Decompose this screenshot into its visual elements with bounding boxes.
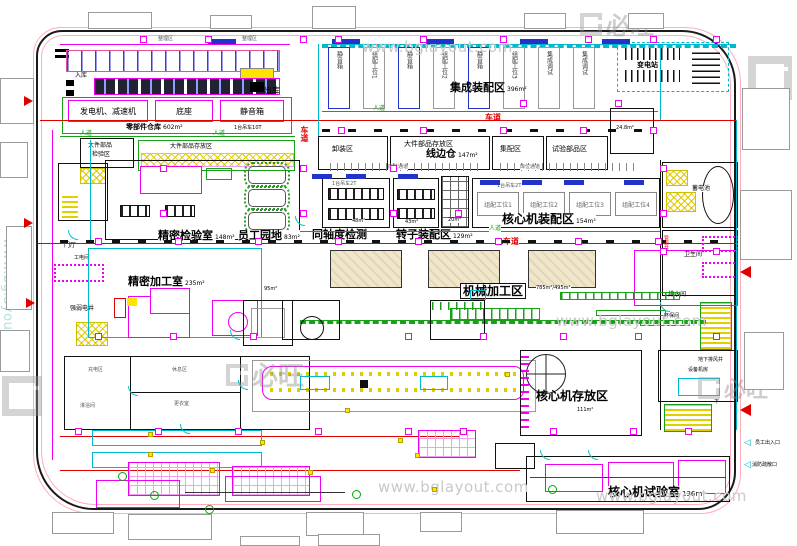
exterior-structure	[312, 6, 356, 29]
column-marker	[160, 210, 167, 217]
assembly-zone-label: 集成装配区396m²	[450, 82, 527, 93]
column-marker	[420, 36, 427, 43]
coax-area: 48m²	[352, 219, 365, 224]
machine	[140, 166, 202, 194]
room-generator: 发电机、减速机	[68, 100, 148, 122]
tank	[702, 166, 734, 224]
room-label: 休息区	[172, 368, 187, 373]
column-marker	[630, 428, 637, 435]
assembly-bay: 静音箱	[398, 47, 420, 109]
pit-marker	[118, 472, 127, 481]
column-marker	[300, 165, 307, 172]
floorplan-canvas: 整理区 整理区 入库 出库 发电机、减速机 底座 静音箱 零部件仓库602m² …	[0, 0, 797, 546]
column-marker	[655, 238, 662, 245]
column-marker	[560, 333, 567, 340]
lift-platform	[80, 168, 106, 184]
equipment	[666, 170, 688, 186]
column-marker	[650, 127, 657, 134]
aisle-label: 库位通道	[520, 165, 540, 170]
bench	[120, 205, 150, 217]
column-marker	[335, 238, 342, 245]
column-marker	[95, 238, 102, 245]
column-marker	[420, 127, 427, 134]
column-marker	[415, 238, 422, 245]
cnc-machine	[150, 288, 190, 314]
column-marker	[660, 165, 667, 172]
fire-exit-label: 消防疏散口	[752, 463, 777, 468]
arrow-marker	[740, 404, 751, 416]
watermark-url: www.bglayout.com	[378, 478, 529, 496]
pedestrian-label: 人道	[213, 131, 225, 137]
door-marker	[520, 39, 548, 44]
valve-marker	[415, 453, 420, 458]
exterior-structure	[240, 536, 300, 546]
assembly-bay: 集成调试	[573, 47, 595, 109]
room-base: 底座	[155, 100, 213, 122]
assembly-bay: 集成调试	[538, 47, 560, 109]
warehouse-label: 零部件仓库602m²	[126, 124, 183, 131]
blue-strip	[624, 180, 644, 185]
arrow-marker	[24, 96, 33, 106]
staff-table	[248, 212, 286, 230]
valve-marker	[345, 408, 350, 413]
column-marker	[170, 333, 177, 340]
column-marker	[315, 428, 322, 435]
exterior-structure	[628, 13, 664, 29]
column-marker	[75, 428, 82, 435]
control-box	[495, 443, 535, 469]
tiny-zone-label: 整理区	[158, 37, 173, 42]
vehicle-lane-label: 车道	[485, 114, 501, 122]
core-assembly-label: 核心机装配区154m²	[502, 213, 596, 225]
pit-marker	[150, 491, 159, 500]
substation-gear	[625, 48, 680, 60]
test-block	[360, 380, 368, 388]
inspect-label-1: 大件部品	[88, 143, 112, 149]
wall-line	[60, 44, 290, 45]
rack-area: 20m²	[448, 218, 461, 223]
right-area: 95m²	[264, 287, 277, 292]
staff-table	[248, 166, 286, 184]
column-marker	[585, 36, 592, 43]
assembly-bay: 组配工位2	[433, 47, 455, 109]
bench	[328, 188, 384, 200]
machine-detail	[470, 290, 486, 300]
arrow-marker	[26, 298, 35, 308]
entry-label: 员工出入口	[755, 441, 780, 446]
pit-marker	[548, 485, 557, 494]
arrow-marker	[24, 218, 33, 228]
logo-glyph-icon	[2, 376, 42, 416]
dock-block	[250, 82, 264, 92]
column-marker	[155, 428, 162, 435]
fire-exit-arrow-icon: ◁	[744, 461, 751, 470]
tiny-zone-label: 整理区	[242, 37, 257, 42]
pedestrian-label: 人道	[489, 226, 501, 232]
exterior-structure	[740, 190, 792, 260]
unload-label: 卸装区	[332, 146, 353, 153]
bench	[397, 189, 435, 200]
column-marker	[575, 238, 582, 245]
exterior-structure	[420, 512, 462, 532]
valve-marker	[308, 470, 313, 475]
lane-hatch	[322, 129, 655, 132]
grid-line	[736, 120, 737, 430]
blue-strip	[398, 174, 418, 179]
assembly-bay: 组配工位1	[363, 47, 385, 109]
center-line	[530, 477, 726, 478]
exterior-structure	[556, 510, 644, 534]
stairs	[62, 196, 78, 218]
rack-ticks	[521, 356, 529, 428]
logo-glyph-icon	[580, 13, 602, 35]
blue-strip	[480, 180, 500, 185]
dock-block	[66, 90, 74, 96]
crane-label: 1台吊车2T	[497, 184, 521, 189]
lineside-label: 线边仓147m²	[426, 150, 478, 160]
column-marker	[500, 127, 507, 134]
fan-symbol	[526, 354, 566, 394]
valve-marker	[432, 487, 437, 492]
mezzanine-room	[610, 108, 654, 154]
inbound-label: 入库	[75, 73, 87, 79]
column-marker	[95, 333, 102, 340]
column-marker	[235, 428, 242, 435]
blue-strip	[346, 174, 366, 179]
door-marker	[602, 39, 630, 44]
bench	[397, 208, 435, 219]
bench	[165, 205, 195, 217]
column-marker	[635, 333, 642, 340]
column-marker	[160, 165, 167, 172]
column-marker	[335, 36, 342, 43]
wall-line	[130, 392, 240, 393]
mech-bench	[330, 250, 402, 288]
valve-marker	[148, 432, 153, 437]
exterior-structure	[0, 142, 28, 178]
grid-line	[318, 44, 319, 136]
equipment	[127, 298, 137, 306]
exterior-structure	[742, 88, 790, 150]
pit-box	[225, 476, 321, 502]
core-store-area: 111m²	[577, 408, 593, 413]
pit-marker	[352, 490, 361, 499]
column-marker	[390, 165, 397, 172]
staff-table	[248, 189, 286, 207]
room-silencer: 静音箱	[220, 100, 284, 122]
column-marker	[255, 238, 262, 245]
column-marker	[685, 428, 692, 435]
column-marker	[480, 333, 487, 340]
lane-hatch	[60, 240, 730, 243]
crane-label: 1台吊车10T	[234, 126, 262, 131]
pit-marker	[205, 505, 214, 514]
conveyor	[560, 292, 680, 300]
column-marker	[713, 248, 720, 255]
column-marker	[500, 36, 507, 43]
core-bay: 组配工位4	[615, 192, 657, 216]
fan-room-label: 地下排风井	[698, 358, 723, 363]
room-label: 充电区	[88, 368, 103, 373]
exterior-structure	[0, 330, 30, 372]
watermark-url: www.bglayout.com	[596, 487, 747, 505]
vehicle-lane-line	[38, 243, 736, 244]
rotor-sub-area: 43m²	[405, 220, 418, 225]
storage-mid-label: 大件部品存放区	[404, 141, 453, 148]
test-parts-label: 试验部品区	[552, 146, 587, 153]
mech-areas: 785m²/495m²	[536, 286, 571, 291]
mezzanine-area: 24.8m²	[616, 126, 634, 131]
column-marker	[455, 210, 462, 217]
storage-left-label: 大件部品存放区	[170, 144, 212, 150]
exterior-structure	[744, 332, 784, 390]
substation-gear	[692, 48, 720, 84]
column-marker	[405, 428, 412, 435]
column-marker	[405, 333, 412, 340]
logo-glyph-icon	[698, 377, 720, 399]
machine-detail	[432, 302, 482, 310]
valve-marker	[505, 372, 510, 377]
blue-strip	[312, 174, 332, 179]
exterior-structure	[128, 514, 212, 540]
exterior-structure	[88, 12, 152, 29]
outbound-label: 出库	[264, 87, 280, 95]
column-marker	[713, 36, 720, 43]
equipment	[666, 192, 696, 212]
assembly-bay: 静音箱	[468, 47, 490, 109]
dock-block	[66, 80, 74, 86]
column-marker	[495, 238, 502, 245]
collect-label: 集配区	[500, 146, 521, 153]
valve-marker	[398, 438, 403, 443]
test-cell	[420, 376, 448, 390]
column-marker	[300, 36, 307, 43]
watermark-logo	[2, 376, 42, 416]
pit-box	[96, 480, 180, 508]
column-marker	[580, 127, 587, 134]
watermark-url: www.bglayout.com	[556, 312, 707, 330]
room-label: 更衣室	[174, 402, 189, 407]
machine-dial	[300, 316, 324, 340]
tool-room-label: 工电间	[74, 256, 89, 261]
column-marker	[250, 333, 257, 340]
test-cell	[300, 376, 330, 390]
door-marker	[426, 39, 454, 44]
machine	[206, 168, 232, 180]
arrow-marker	[740, 266, 751, 278]
blue-strip	[522, 180, 542, 185]
grid-equipment	[418, 430, 476, 458]
exterior-structure	[318, 534, 380, 546]
assembly-bay: 静音箱	[328, 47, 350, 109]
watermark-logo: 必旺	[226, 356, 304, 393]
pedestrian-label: 人道	[80, 131, 92, 137]
column-marker	[650, 36, 657, 43]
pedestrian-label: 人道	[373, 106, 385, 112]
valve-marker	[210, 468, 215, 473]
core-store-label: 核心机存放区	[536, 390, 608, 402]
mech-bench	[528, 250, 596, 288]
precision-label: 精密加工室235m²	[128, 276, 205, 287]
column-marker	[460, 428, 467, 435]
column-marker	[550, 428, 557, 435]
substation-gear	[625, 70, 680, 82]
inspect-label-2: 检验区	[92, 152, 110, 158]
column-marker	[520, 100, 527, 107]
wall-line	[52, 130, 53, 460]
column-marker	[615, 100, 622, 107]
grid-line	[660, 44, 661, 120]
column-marker	[338, 127, 345, 134]
room-label: 淋浴间	[80, 404, 95, 409]
exterior-structure	[210, 15, 252, 29]
column-marker	[175, 238, 182, 245]
annotation-line	[185, 492, 345, 493]
column-marker	[390, 210, 397, 217]
crane-label: 1台吊车2T	[332, 182, 356, 187]
column-marker	[713, 333, 720, 340]
pedestrian-lane-line	[60, 136, 295, 137]
exterior-structure	[52, 512, 114, 534]
column-marker	[140, 36, 147, 43]
vehicle-lane-label-vertical: 车道	[300, 126, 308, 142]
equipment	[114, 298, 126, 318]
exterior-structure	[306, 512, 364, 536]
substation-label: 变电站	[637, 62, 658, 69]
column-marker	[660, 248, 667, 255]
grid-line	[90, 140, 91, 240]
pedestrian-lane-line	[300, 231, 660, 232]
door-marker	[208, 39, 236, 44]
blue-strip	[564, 180, 584, 185]
exterior-structure	[524, 13, 566, 29]
column-marker	[660, 210, 667, 217]
valve-marker	[260, 440, 265, 445]
valve-marker	[148, 452, 153, 457]
entry-arrow-icon: ◁	[744, 439, 751, 448]
battery-label: 蓄电池	[692, 186, 710, 192]
column-marker	[205, 36, 212, 43]
